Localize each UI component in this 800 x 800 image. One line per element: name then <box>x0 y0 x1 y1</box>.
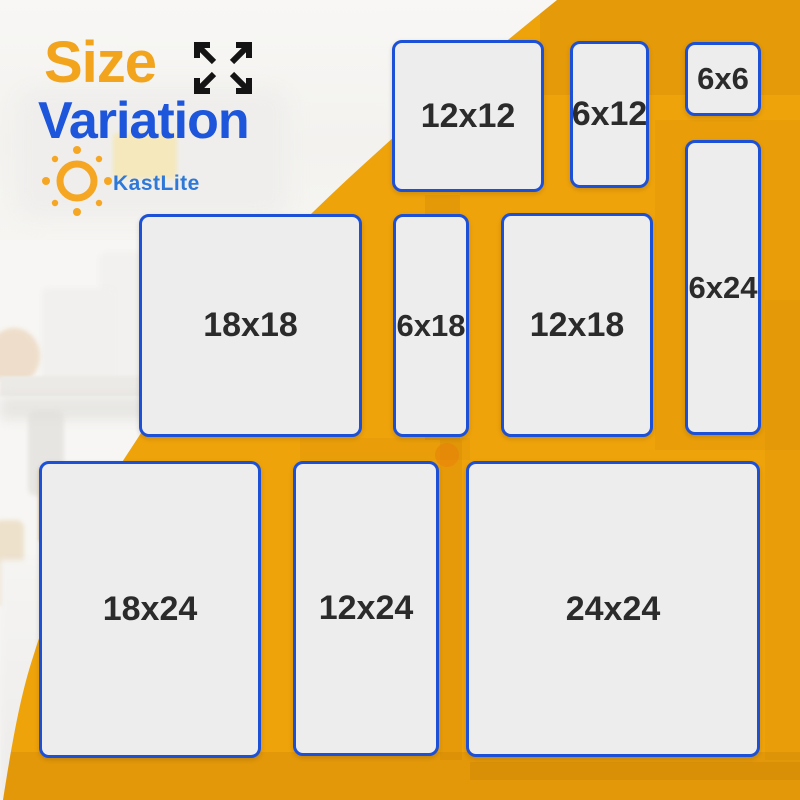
size-panel-18x24: 18x24 <box>39 461 261 758</box>
size-panel-6x12: 6x12 <box>570 41 649 188</box>
size-label: 6x6 <box>697 61 749 97</box>
size-label: 24x24 <box>566 590 661 629</box>
size-panel-12x18: 12x18 <box>501 213 653 437</box>
expand-arrows-icon <box>192 40 254 96</box>
size-panel-6x24: 6x24 <box>685 140 761 435</box>
size-label: 12x24 <box>319 589 414 628</box>
product-size-variation-image: Size Variation KastLite 12x12 6x12 6x6 <box>0 0 800 800</box>
sun-icon <box>41 145 113 217</box>
brand-name: KastLite <box>113 172 200 196</box>
title-variation: Variation <box>38 95 249 147</box>
size-panel-6x18: 6x18 <box>393 214 469 437</box>
size-label: 6x12 <box>572 95 648 134</box>
size-label: 12x12 <box>421 97 516 136</box>
size-panel-12x12: 12x12 <box>392 40 544 192</box>
brand-logo: KastLite <box>41 145 301 217</box>
size-label: 6x18 <box>397 308 466 344</box>
size-panel-6x6: 6x6 <box>685 42 761 116</box>
size-panel-24x24: 24x24 <box>466 461 760 757</box>
size-label: 18x24 <box>103 590 198 629</box>
size-label: 12x18 <box>530 306 625 345</box>
size-label: 18x18 <box>203 306 298 345</box>
size-panel-18x18: 18x18 <box>139 214 362 437</box>
size-panel-12x24: 12x24 <box>293 461 439 756</box>
title-size: Size <box>44 34 156 92</box>
size-label: 6x24 <box>689 270 758 306</box>
